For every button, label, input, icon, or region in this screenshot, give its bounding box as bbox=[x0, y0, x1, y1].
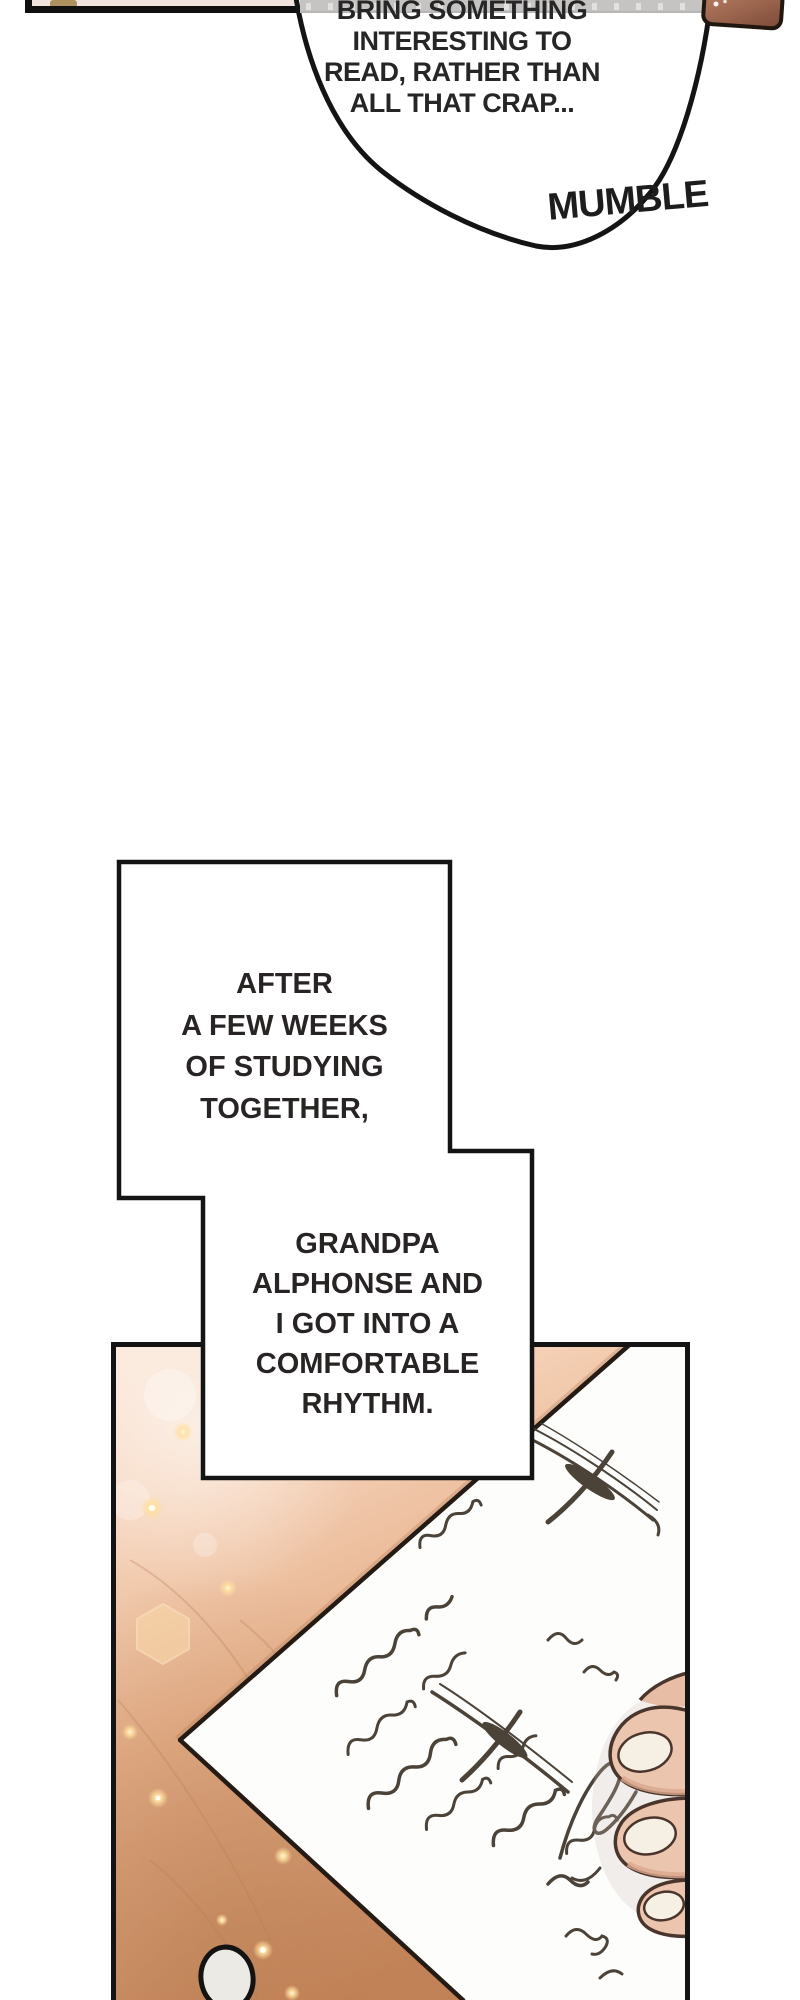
narration-line: OF STUDYING bbox=[119, 1047, 450, 1089]
narration-box-2-text: GRANDPA ALPHONSE AND I GOT INTO A COMFOR… bbox=[203, 1224, 532, 1424]
narration-line: RHYTHM. bbox=[203, 1384, 532, 1424]
speech-line: BRING SOMETHING bbox=[312, 0, 612, 26]
narration-box-1-text: AFTER A FEW WEEKS OF STUDYING TOGETHER, bbox=[119, 964, 450, 1130]
panel-border-sliver bbox=[25, 6, 315, 13]
narration-line: GRANDPA bbox=[203, 1224, 532, 1264]
narration-line: TOGETHER, bbox=[119, 1089, 450, 1131]
speech-line: INTERESTING TO bbox=[312, 26, 612, 57]
narration-line: A FEW WEEKS bbox=[119, 1006, 450, 1048]
speech-line: ALL THAT CRAP... bbox=[312, 88, 612, 119]
book-corner bbox=[703, 0, 783, 29]
speech-bubble-text: BRING SOMETHING INTERESTING TO READ, RAT… bbox=[312, 0, 612, 119]
previous-panel-remnant bbox=[25, 0, 315, 13]
narration-line: ALPHONSE AND bbox=[203, 1264, 532, 1304]
narration-line: I GOT INTO A bbox=[203, 1304, 532, 1344]
narration-line: COMFORTABLE bbox=[203, 1344, 532, 1384]
speech-line: READ, RATHER THAN bbox=[312, 57, 612, 88]
narration-line: AFTER bbox=[119, 964, 450, 1006]
comic-page: BRING SOMETHING INTERESTING TO READ, RAT… bbox=[0, 0, 800, 2000]
panel-border-corner bbox=[25, 0, 32, 13]
